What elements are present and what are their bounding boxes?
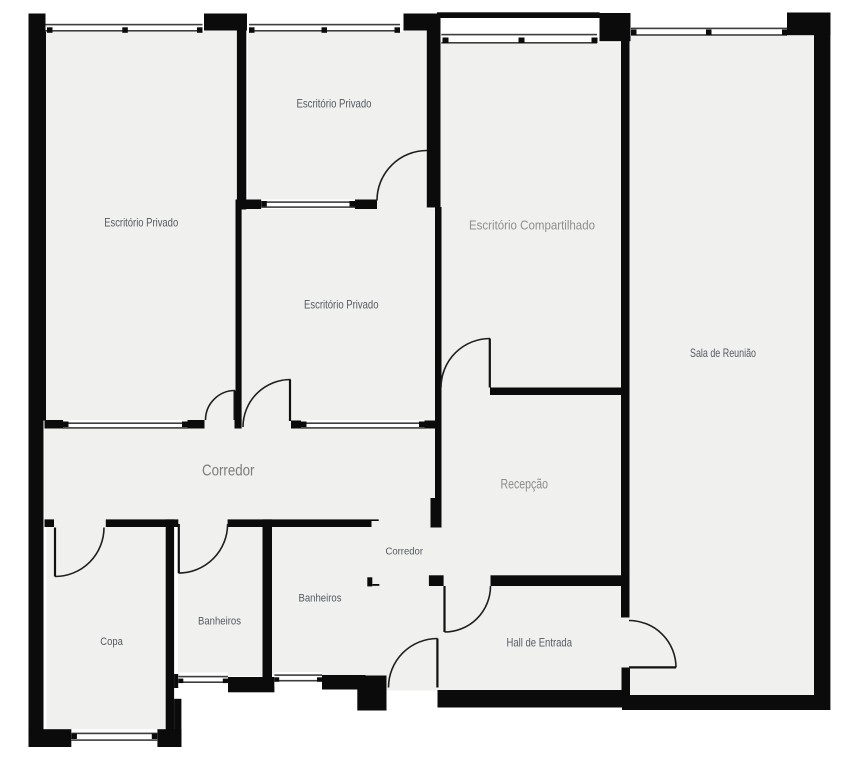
svg-text:Escritório Privado: Escritório Privado [304, 298, 379, 312]
svg-text:Copa: Copa [100, 636, 123, 648]
svg-text:Escritório Privado: Escritório Privado [104, 216, 178, 230]
svg-text:Corredor: Corredor [202, 463, 255, 480]
svg-text:Corredor: Corredor [386, 546, 424, 557]
svg-text:Banheiros: Banheiros [299, 593, 342, 605]
svg-text:Escritório Privado: Escritório Privado [297, 96, 372, 110]
svg-text:Escritório Compartilhado: Escritório Compartilhado [469, 218, 595, 233]
svg-text:Recepção: Recepção [501, 476, 549, 492]
svg-text:Sala de Reunião: Sala de Reunião [690, 346, 756, 360]
svg-text:Banheiros: Banheiros [198, 616, 241, 628]
svg-text:Hall de Entrada: Hall de Entrada [507, 636, 573, 650]
